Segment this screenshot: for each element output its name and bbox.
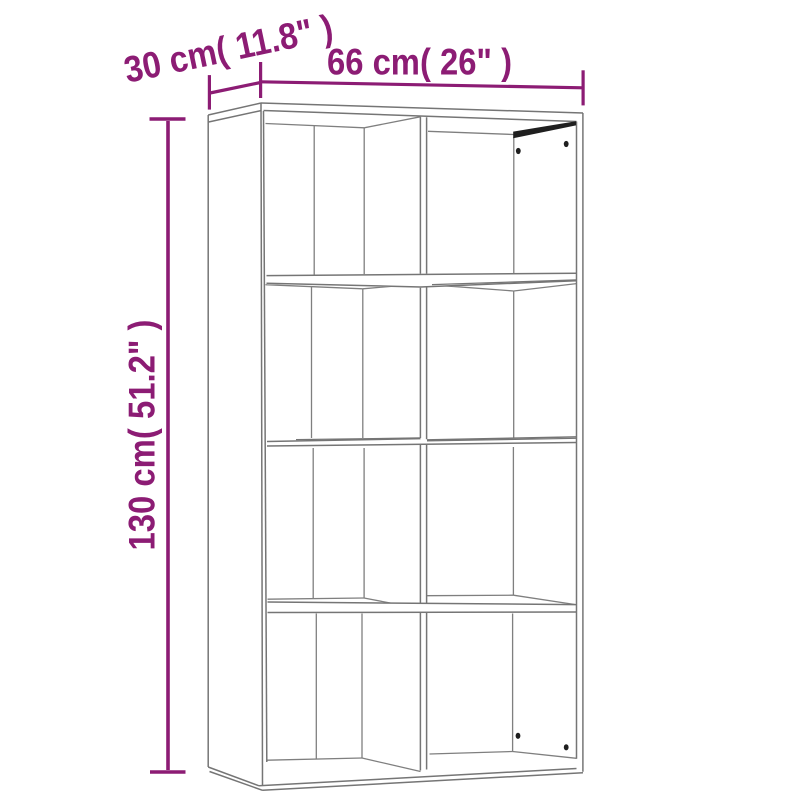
svg-text:66 cm( 26" ): 66 cm( 26" ) <box>327 42 512 83</box>
svg-text:130 cm( 51.2" ): 130 cm( 51.2" ) <box>122 320 163 551</box>
